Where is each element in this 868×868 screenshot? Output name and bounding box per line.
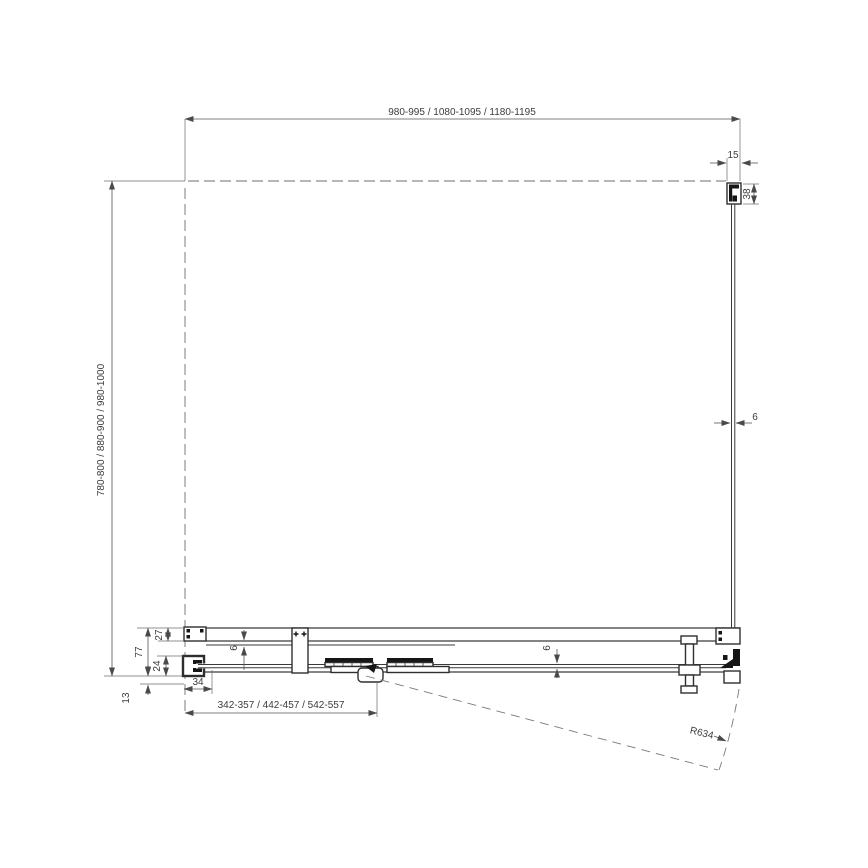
top-rail-depth-label: 27 bbox=[154, 629, 165, 641]
drawing-canvas: 980-995 / 1080-1095 / 1180-1195 780-800 … bbox=[0, 0, 868, 868]
side-glass-panel bbox=[732, 204, 735, 628]
rail-end-cap bbox=[184, 627, 206, 641]
side-glass-thickness-dimension: 6 bbox=[714, 412, 758, 423]
top-width-label: 980-995 / 1080-1095 / 1180-1195 bbox=[388, 107, 536, 118]
door-entry-span-label: 342-357 / 442-457 / 542-557 bbox=[218, 700, 345, 711]
door-profile-depth-dimension: 24 bbox=[152, 656, 183, 676]
door-assembly bbox=[183, 627, 740, 693]
shower-enclosure-plan-drawing: 980-995 / 1080-1095 / 1180-1195 780-800 … bbox=[0, 0, 868, 868]
door-glass-thickness-label: 6 bbox=[542, 645, 553, 651]
threshold-offset-label: 13 bbox=[121, 692, 132, 704]
roller-carriage-right bbox=[387, 658, 449, 673]
end-profile-width-label: 34 bbox=[192, 677, 204, 688]
top-width-dimension: 980-995 / 1080-1095 / 1180-1195 bbox=[185, 107, 740, 181]
wall-profile-section bbox=[727, 183, 741, 204]
door-glass-thickness-dimension: 6 bbox=[542, 645, 557, 678]
swing-radius-label: R634 bbox=[689, 725, 715, 742]
side-depth-label: 780-800 / 880-900 / 980-1000 bbox=[96, 363, 107, 496]
wall-profile-depth-label: 38 bbox=[742, 188, 753, 200]
door-end-profile bbox=[183, 656, 212, 676]
wall-reference-lines bbox=[185, 181, 726, 713]
fixed-glass-thickness-label: 6 bbox=[229, 645, 240, 651]
wall-profile-width-dimension: 15 bbox=[710, 150, 758, 181]
side-depth-dimension: 780-800 / 880-900 / 980-1000 bbox=[96, 181, 185, 676]
door-entry-span-dimension: 342-357 / 442-457 / 542-557 bbox=[185, 682, 377, 717]
corner-bracket bbox=[716, 628, 740, 644]
pivot-hinge bbox=[720, 649, 740, 683]
wall-profile-width-label: 15 bbox=[727, 150, 739, 161]
wall-profile-depth-dimension: 38 bbox=[742, 184, 759, 204]
support-strut-section bbox=[679, 636, 700, 693]
top-rail-depth-dimension: 27 bbox=[154, 628, 184, 641]
wall-bracket bbox=[292, 628, 308, 673]
assembly-depth-label: 77 bbox=[134, 646, 145, 658]
side-glass-thickness-label: 6 bbox=[752, 412, 758, 423]
door-profile-depth-label: 24 bbox=[152, 660, 163, 672]
